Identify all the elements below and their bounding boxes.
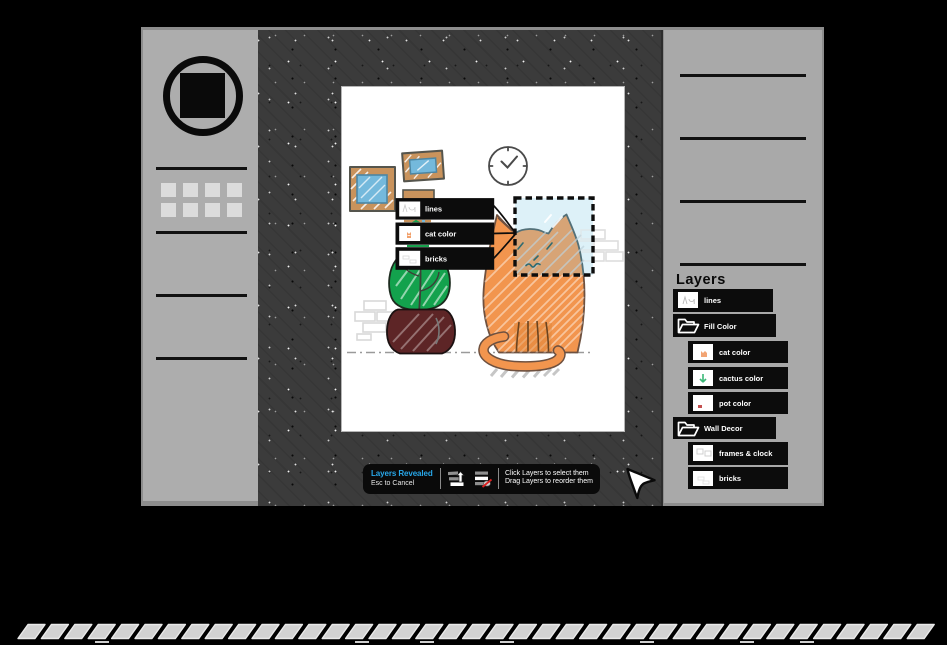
svg-text:cat color: cat color — [425, 230, 456, 239]
svg-text:bricks: bricks — [425, 255, 447, 264]
svg-text:lines: lines — [425, 205, 442, 214]
